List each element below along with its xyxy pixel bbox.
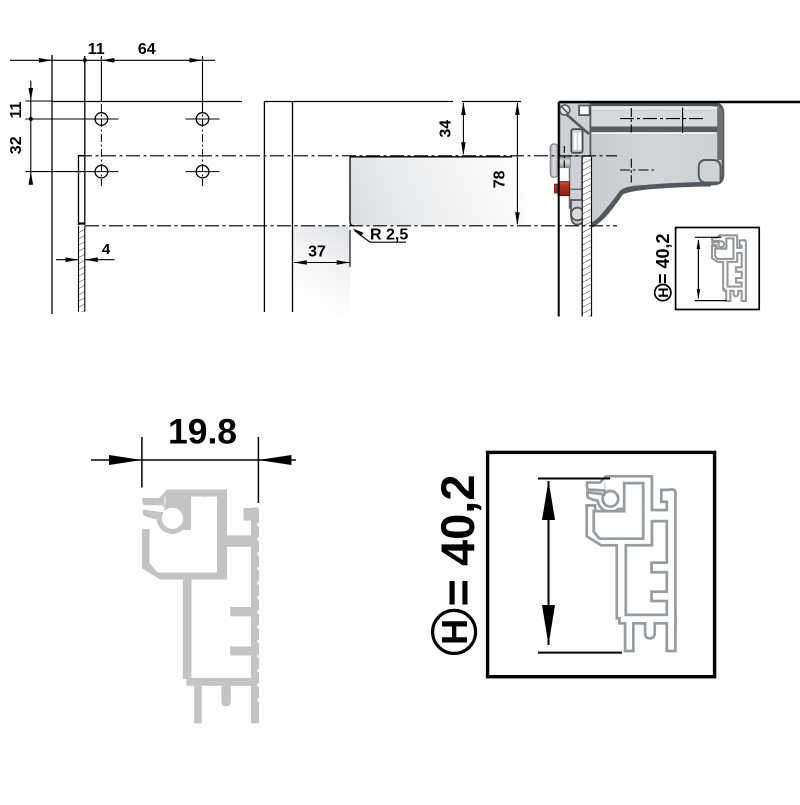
- svg-text:= 40,2: = 40,2: [653, 233, 673, 284]
- svg-text:32: 32: [8, 136, 25, 154]
- svg-text:= 40,2: = 40,2: [431, 475, 484, 607]
- svg-text:19.8: 19.8: [168, 412, 237, 452]
- svg-text:H: H: [434, 619, 475, 645]
- svg-text:R 2,5: R 2,5: [370, 227, 408, 244]
- svg-text:78: 78: [492, 170, 509, 188]
- svg-text:H: H: [655, 288, 671, 298]
- svg-text:64: 64: [138, 41, 156, 58]
- svg-text:37: 37: [308, 244, 326, 261]
- svg-text:11: 11: [8, 101, 25, 118]
- svg-text:11: 11: [88, 41, 105, 58]
- svg-text:34: 34: [438, 120, 455, 138]
- svg-text:4: 4: [102, 241, 111, 258]
